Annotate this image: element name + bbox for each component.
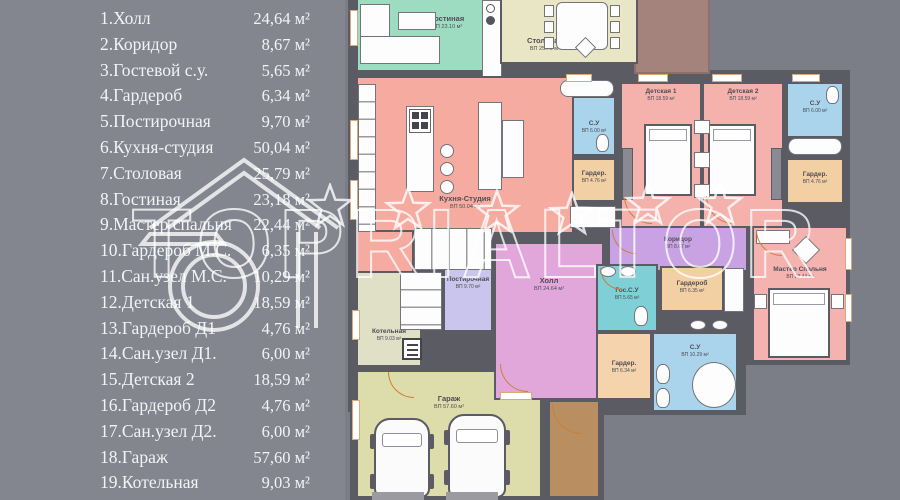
room-label: Гардероб [662,280,722,288]
room-area: ВП 6.00 м² [574,128,614,135]
legend-room-name: 11.Сан.узел М.С. [100,266,227,287]
legend-room-name: 19.Котельная [100,472,199,493]
shelves [570,206,616,228]
boiler-icon [402,338,422,360]
room-area: ВП 24.64 м² [496,286,602,293]
washing-machines [400,272,442,330]
legend-room-area: 23,18 м² [253,190,310,210]
cooktop-icon [409,109,431,133]
kitchen-cabinets [358,84,376,232]
room-label: С.У [654,344,736,352]
terrace [634,0,710,74]
window [792,74,820,82]
room-bathroom-top-left: С.УВП 6.00 м² [572,96,616,156]
room-wardrobe-top-left: Гардер.ВП 4.76 м² [572,158,616,202]
room-wardrobe-top-right: Гардер.ВП 4.76 м² [786,158,844,204]
legend-room-name: 5.Постирочная [100,111,211,132]
room-wardrobe-hall: Гардер.ВП 6.34 м² [596,332,652,400]
legend-room-area: 25,79 м² [253,164,310,184]
legend-room-name: 6.Кухня-студия [100,137,213,158]
legend-room-area: 8,67 м² [262,35,310,55]
window [712,74,742,82]
window [845,294,852,322]
legend-room-name: 10.Гардероб М.С. [100,240,231,261]
window [352,400,360,440]
legend-row: 17.Сан.узел Д2.6,00 м² [100,421,310,447]
room-label: Детская 2 [704,88,782,96]
legend-row: 2.Коридор8,67 м² [100,34,310,60]
room-area: ВП 4.76 м² [574,178,614,185]
stove-icon [485,3,498,29]
shelves [724,268,744,312]
bar-stool [440,180,454,194]
bed-master [768,288,830,358]
legend-room-area: 50,04 м² [253,138,310,158]
room-area: ВП 4.76 м² [788,179,842,186]
chair [544,21,554,33]
legend-room-area: 4,76 м² [262,396,310,416]
nightstand [694,120,710,134]
legend-row: 12.Детская 118,59 м² [100,292,310,318]
room-kitchen-studio-ext [356,230,414,276]
bed-child2 [708,124,756,196]
legend-room-area: 5,65 м² [262,61,310,81]
chair [544,37,554,49]
room-label: Гардер. [598,360,650,368]
legend-room-area: 6,35 м² [262,241,310,261]
room-legend-panel: 1.Холл24,64 м² 2.Коридор8,67 м² 3.Гостев… [0,0,345,500]
legend-row: 8.Гостиная23,18 м² [100,189,310,215]
nightstand [754,294,767,309]
window [500,392,532,400]
car [448,414,506,498]
room-label: Постирочная [445,276,491,284]
legend-room-name: 7.Столовая [100,163,182,184]
legend-room-name: 3.Гостевой с.у. [100,60,208,81]
legend-room-area: 4,76 м² [262,319,310,339]
nightstand [831,294,844,309]
legend-room-name: 18.Гараж [100,447,168,468]
legend-room-name: 14.Сан.узел Д1. [100,343,217,364]
legend-room-area: 9,03 м² [262,473,310,493]
room-label: Гос.С.У [598,287,656,295]
legend-row: 13.Гардероб Д14,76 м² [100,318,310,344]
legend-row: 1.Холл24,64 м² [100,8,310,34]
room-area: ВП 18.59 м² [704,96,782,103]
wardrobe-strip [622,148,633,200]
room-label: Холл [496,276,602,286]
room-area: ВП 22.44 м² [754,274,846,281]
chair [610,37,620,49]
window [350,10,358,46]
room-kitchen-studio: Кухня-СтудияВП 50.04 м² [356,76,574,234]
legend-room-area: 24,64 м² [253,9,310,29]
window [845,238,852,270]
room-label: С.У [574,120,614,128]
legend-row: 5.Постирочная9,70 м² [100,111,310,137]
legend-room-area: 22,44 м² [253,215,310,235]
bar-stool [440,162,454,176]
room-legend-list: 1.Холл24,64 м² 2.Коридор8,67 м² 3.Гостев… [100,8,310,498]
nightstand [694,152,710,168]
room-area: ВП 6.00 м² [788,108,842,115]
legend-row: 9.Мастер спальня22,44 м² [100,214,310,240]
sink [712,320,728,330]
legend-room-area: 10,29 м² [253,267,310,287]
kitchen-table [502,120,524,178]
legend-row: 14.Сан.узел Д1.6,00 м² [100,343,310,369]
room-label: Детская 1 [622,88,700,96]
legend-room-name: 9.Мастер спальня [100,214,232,235]
legend-room-area: 18,59 м² [253,370,310,390]
car [374,418,430,498]
cabinet-row [414,228,492,270]
window [566,74,592,82]
legend-row: 18.Гараж57,60 м² [100,447,310,473]
legend-row: 15.Детская 218,59 м² [100,369,310,395]
wardrobe-strip [771,148,782,200]
sink [690,320,706,330]
room-area: ВП 6.34 м² [598,368,650,375]
window [350,180,358,220]
legend-room-name: 8.Гостиная [100,189,181,210]
room-label: Гардер. [788,171,842,179]
floorplan-screenshot: 1.Холл24,64 м² 2.Коридор8,67 м² 3.Гостев… [0,0,900,500]
legend-room-area: 6,00 м² [262,422,310,442]
room-area: ВП 10.29 м² [654,352,736,359]
garage-door [372,492,424,500]
legend-room-area: 18,59 м² [253,293,310,313]
legend-row: 16.Гардероб Д24,76 м² [100,395,310,421]
garage-door [446,492,498,500]
legend-row: 11.Сан.узел М.С.10,29 м² [100,266,310,292]
legend-room-name: 17.Сан.узел Д2. [100,421,217,442]
window [638,74,668,82]
legend-row: 3.Гостевой с.у.5,65 м² [100,60,310,86]
legend-row: 10.Гардероб М.С.6,35 м² [100,240,310,266]
legend-room-area: 9,70 м² [262,112,310,132]
sofa [360,36,440,64]
bathtub [788,138,842,155]
toilet [596,134,609,152]
sink [620,266,636,277]
legend-room-name: 12.Детская 1 [100,292,195,313]
legend-row: 19.Котельная9,03 м² [100,472,310,498]
legend-row: 4.Гардероб6,34 м² [100,85,310,111]
room-area: ВП 57.60 м² [358,404,540,411]
room-label: Гардер. [574,170,614,178]
bed-child1 [644,124,692,196]
coffee-table [398,12,436,30]
legend-room-area: 6,00 м² [262,344,310,364]
room-area: ВП 6.35 м² [662,288,722,295]
chair [610,21,620,33]
legend-room-name: 1.Холл [100,8,151,29]
room-label: Кухня-Студия [358,194,572,204]
room-wardrobe-master: ГардеробВП 6.35 м² [660,266,724,312]
window [350,120,358,160]
room-area: ВП 9.70 м² [445,284,491,291]
chair [544,5,554,17]
corner-bathtub [692,362,736,408]
legend-row: 6.Кухня-студия50,04 м² [100,137,310,163]
toilet [826,86,839,104]
legend-room-area: 57,60 м² [253,448,310,468]
room-label: Мастер Спальня [754,266,846,274]
window [352,310,360,340]
toilet [634,306,648,326]
toilet [656,364,670,384]
legend-room-name: 13.Гардероб Д1 [100,318,216,339]
kitchen-table [478,102,502,190]
legend-room-name: 4.Гардероб [100,85,182,106]
legend-row: 7.Столовая25,79 м² [100,163,310,189]
chair [610,5,620,17]
legend-room-name: 2.Коридор [100,34,177,55]
toilet [656,388,670,408]
legend-room-name: 16.Гардероб Д2 [100,395,216,416]
legend-room-area: 6,34 м² [262,86,310,106]
bathtub [560,80,614,97]
room-area: ВП 18.59 м² [622,96,700,103]
room-area: ВП 5.65 м² [598,295,656,302]
legend-room-name: 15.Детская 2 [100,369,195,390]
room-area: ВП 50.04 м² [358,204,572,211]
bar-stool [440,144,454,158]
